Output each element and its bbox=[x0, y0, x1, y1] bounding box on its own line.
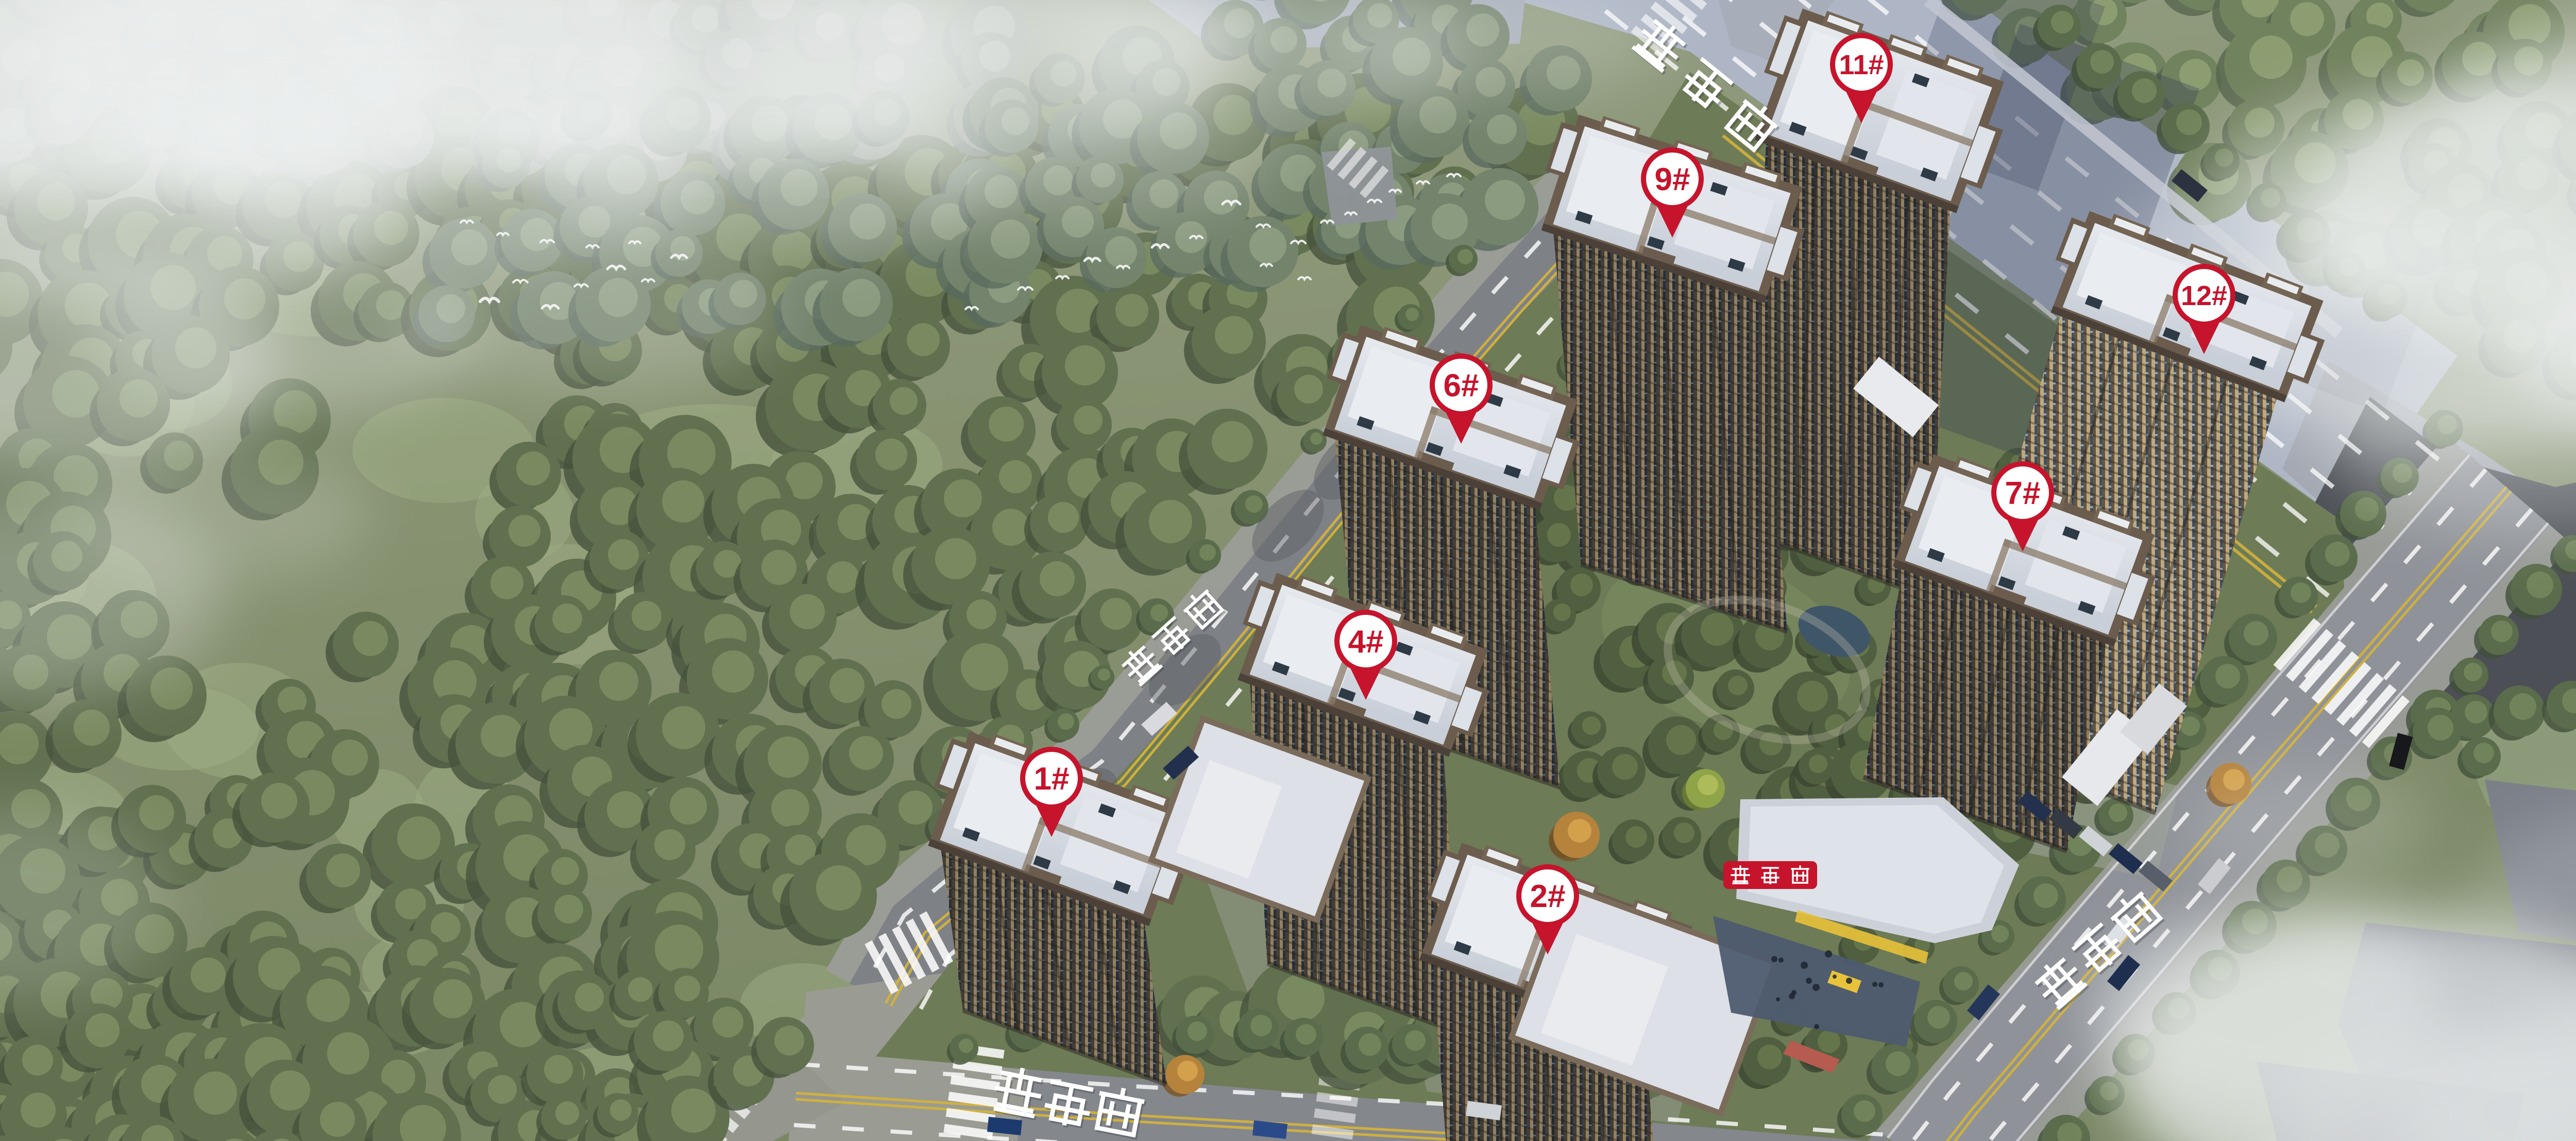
svg-text:9#: 9# bbox=[1655, 162, 1690, 197]
svg-text:7#: 7# bbox=[2005, 476, 2041, 511]
svg-text:2#: 2# bbox=[1530, 879, 1566, 914]
svg-text:11#: 11# bbox=[1839, 49, 1884, 80]
svg-text:4#: 4# bbox=[1348, 624, 1384, 660]
svg-text:6#: 6# bbox=[1444, 368, 1479, 404]
svg-text:12#: 12# bbox=[2181, 280, 2227, 311]
svg-text:1#: 1# bbox=[1034, 761, 1070, 797]
